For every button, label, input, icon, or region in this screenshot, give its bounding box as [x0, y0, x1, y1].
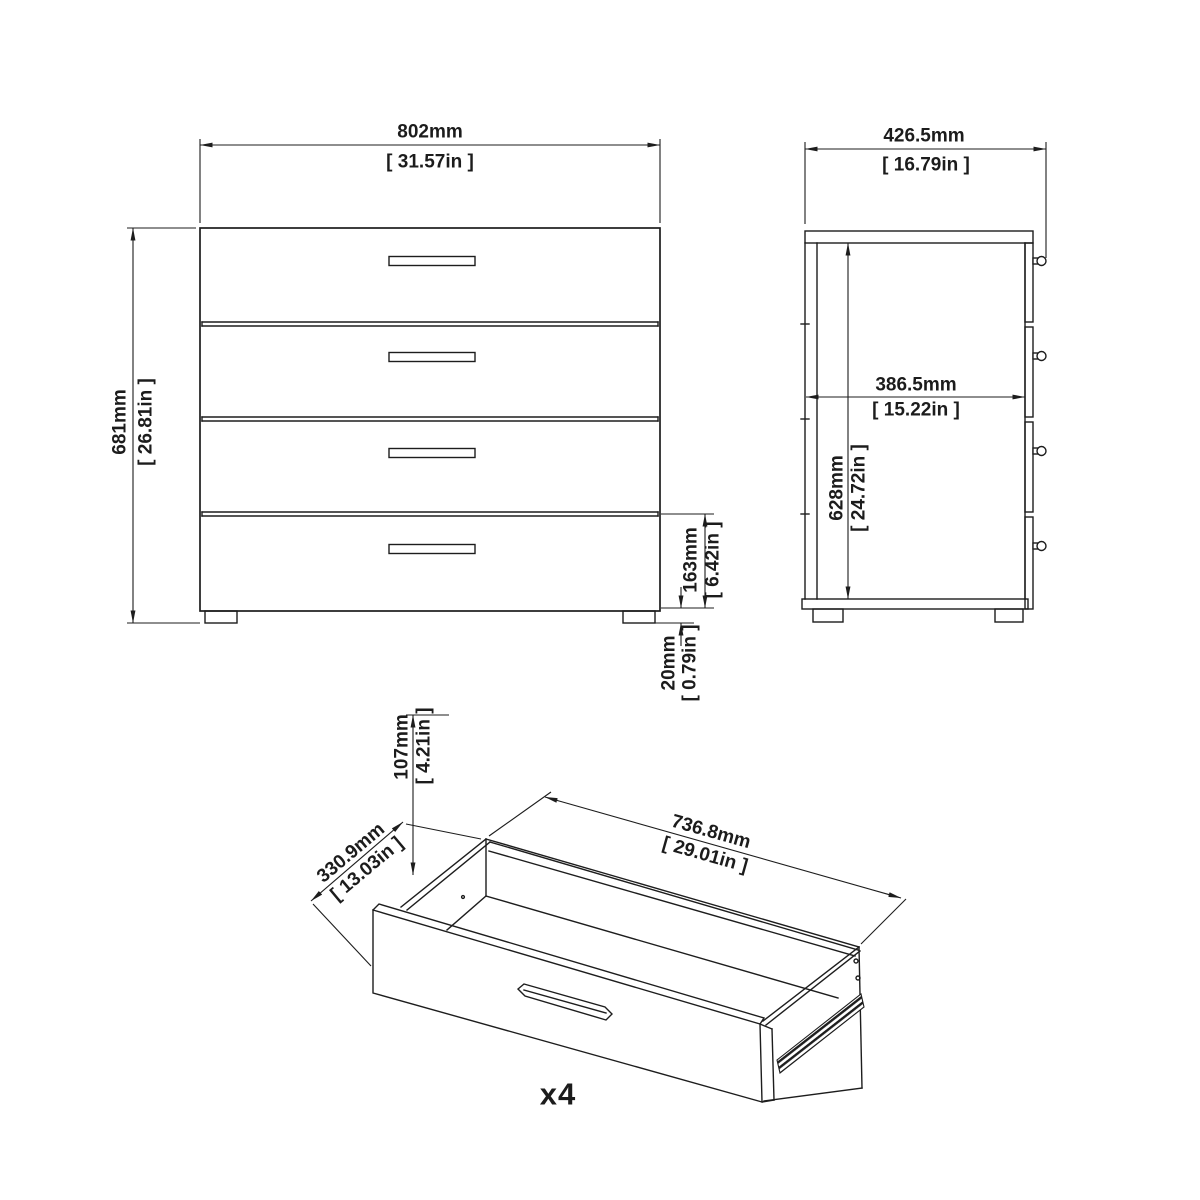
foot-height-imperial-label: [ 0.79in ]	[681, 624, 700, 701]
interior-height-imperial-label: [ 24.72in ]	[850, 444, 869, 532]
front-height-metric-label: 681mm	[111, 389, 130, 455]
technical-drawing	[0, 0, 1200, 1200]
front-width-imperial-label: [ 31.57in ]	[386, 153, 474, 172]
front-feet	[205, 611, 655, 623]
drawer-height-metric-label: 107mm	[393, 714, 412, 780]
bottom-drawer-height-metric-label: 163mm	[682, 527, 701, 593]
side-knobs	[1033, 257, 1046, 551]
front-width-metric-label: 802mm	[397, 123, 463, 142]
front-height-imperial-label: [ 26.81in ]	[137, 378, 156, 466]
foot-height-metric-label: 20mm	[660, 636, 679, 691]
bottom-drawer-height-imperial-label: [ 6.42in ]	[704, 521, 723, 598]
side-depth-imperial-label: [ 16.79in ]	[882, 156, 970, 175]
interior-height-metric-label: 628mm	[828, 455, 847, 521]
side-view-dimensions	[805, 142, 1046, 599]
drawer-height-imperial-label: [ 4.21in ]	[415, 707, 434, 784]
side-feet	[813, 609, 1023, 622]
interior-depth-metric-label: 386.5mm	[875, 376, 956, 395]
front-drawer-handles	[389, 257, 475, 554]
front-view-dimensions	[127, 139, 714, 646]
interior-depth-imperial-label: [ 15.22in ]	[872, 401, 960, 420]
front-view-drawing	[127, 139, 714, 646]
dimension-diagram: 802mm [ 31.57in ] 681mm [ 26.81in ] 163m…	[0, 0, 1200, 1200]
side-depth-metric-label: 426.5mm	[883, 127, 964, 146]
drawer-quantity-label: x4	[540, 1079, 576, 1110]
